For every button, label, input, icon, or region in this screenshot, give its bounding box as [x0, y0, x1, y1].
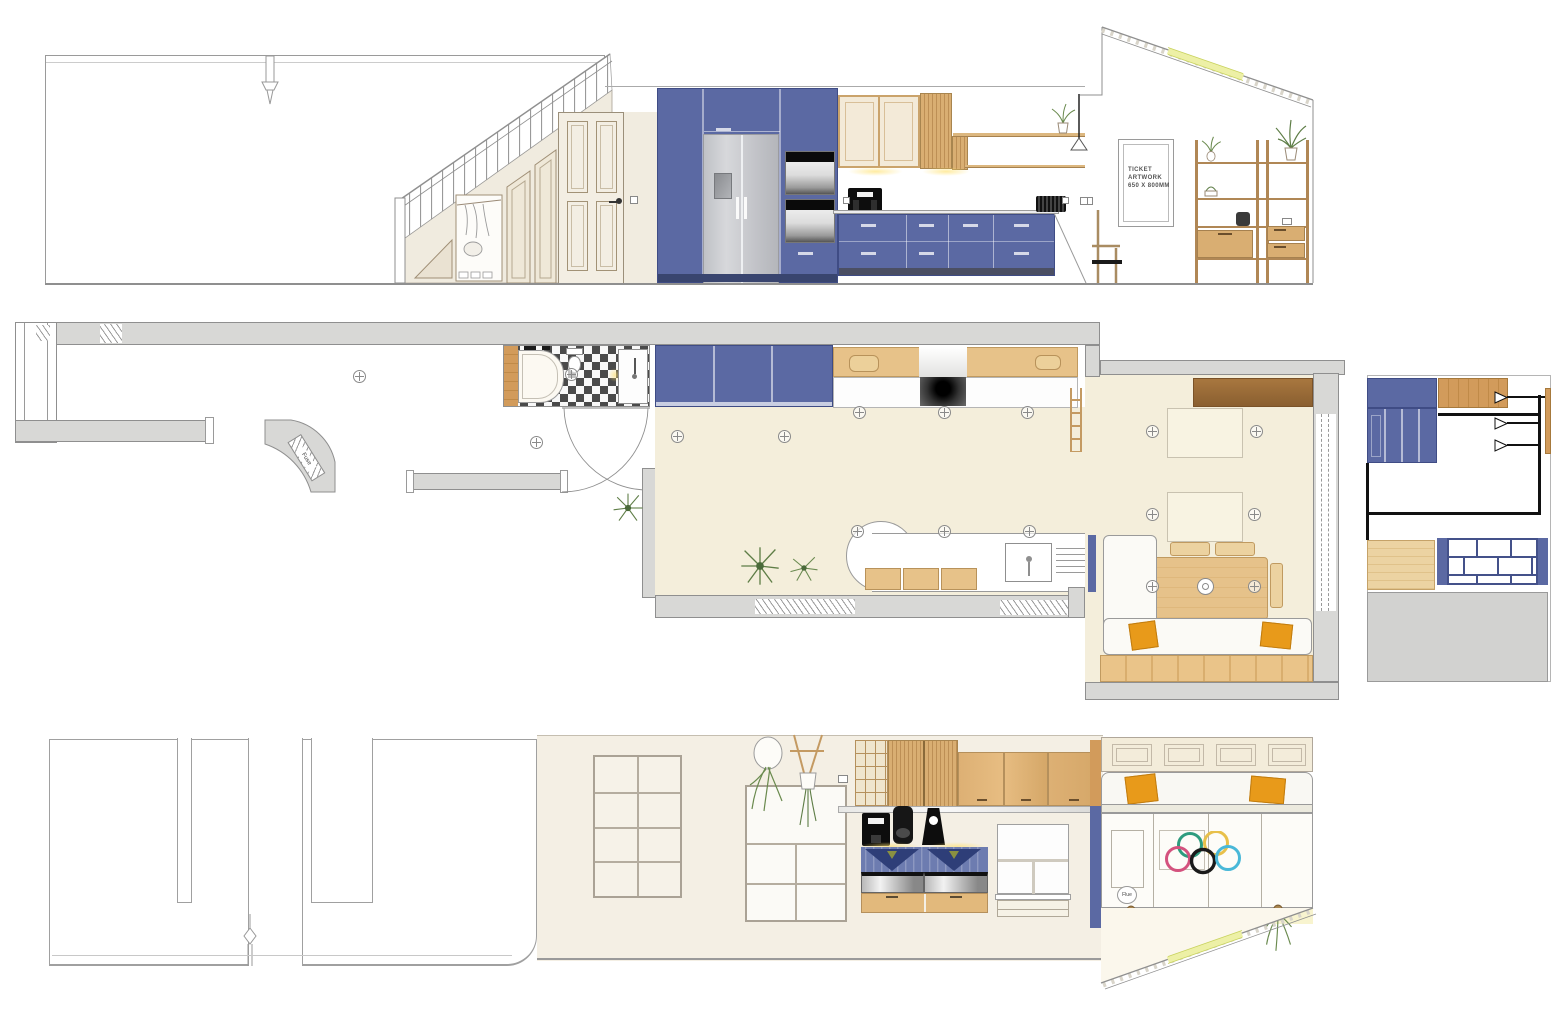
brick-panel [1478, 576, 1510, 583]
plant-fronds [750, 767, 782, 811]
shelf [1195, 198, 1309, 200]
brick-panel [1449, 540, 1476, 556]
mezzanine-wall-line [1366, 463, 1369, 540]
wall-shelf-lower [965, 165, 1085, 168]
brick-panel [1512, 576, 1536, 583]
front-wall [412, 473, 565, 490]
window-grid [593, 755, 682, 898]
cabinet-panel [1112, 744, 1152, 766]
ticket-artwork-frame: TICKET ARTWORK 650 X 800MM [1118, 139, 1174, 227]
ring-green [1179, 834, 1202, 857]
direction-arrow [1494, 439, 1508, 452]
door-panel [567, 201, 588, 271]
hob-counter [919, 347, 967, 377]
ceiling-light-symbol [565, 368, 578, 381]
fridge-dispenser [714, 173, 732, 199]
blue-wall-strip [1088, 535, 1096, 592]
orange-cushion [1128, 620, 1158, 650]
shelf-drawer [1267, 226, 1305, 241]
ceiling-light-symbol [530, 436, 543, 449]
shower [618, 349, 648, 404]
ceiling-light-symbol [1146, 580, 1159, 593]
wood-strip [1545, 388, 1551, 454]
rug [1167, 408, 1243, 458]
roof-dashed-line [1328, 414, 1329, 611]
ceiling-light-symbol [671, 430, 684, 443]
drawing-canvas: TICKET ARTWORK 650 X 800MM [0, 0, 1558, 1009]
corridor-south-wall [15, 420, 207, 442]
rug [1167, 492, 1243, 542]
fridge-handle [744, 197, 747, 219]
shelf-plant-icon [1200, 136, 1222, 162]
brick-panel [1499, 558, 1531, 574]
drawer-label-mark [861, 224, 876, 227]
mezzanine-landing [1367, 592, 1548, 682]
plinth [839, 268, 1054, 275]
fuse-label: Fuse [300, 452, 312, 466]
drawer-label-mark [1014, 252, 1029, 255]
plan-north-wall [15, 322, 1100, 345]
wall-recess [177, 738, 192, 903]
brick-panel [1449, 576, 1476, 583]
shoes [459, 272, 492, 278]
island-sink [1005, 543, 1052, 582]
section-marker [843, 197, 850, 204]
wall-ladder [1070, 388, 1082, 452]
mezzanine-wall-line [1438, 413, 1541, 416]
plant-hanger [790, 735, 824, 773]
wood-slat-panel [920, 93, 952, 169]
brick-panel [1512, 540, 1536, 556]
mezzanine-wall-line [1538, 395, 1541, 515]
steel-appliance [861, 872, 924, 893]
newel-post [395, 198, 405, 283]
cabinet-panel [1216, 744, 1256, 766]
bathroom-wood-strip [504, 346, 518, 406]
dining-pendant-symbol [1197, 578, 1214, 595]
door-swing-arcs [558, 404, 654, 496]
direction-arrow [1494, 417, 1508, 430]
desk-chair [1090, 208, 1122, 285]
drawer-label-mark [919, 224, 934, 227]
wood-upper-cabinet [958, 752, 1048, 806]
plan-tall-units [655, 345, 833, 407]
succulent-icon [1202, 182, 1220, 198]
bench-seat [1101, 804, 1313, 813]
ceiling-light-symbol [1250, 425, 1263, 438]
wood-floor-strip [1100, 655, 1313, 682]
ceiling-light-symbol [1248, 580, 1261, 593]
door-jamb [205, 417, 214, 444]
glazing-hatch [1000, 600, 1068, 615]
marble-counter [838, 806, 1103, 813]
integrated-fridge [703, 134, 779, 284]
understair-wardrobe [456, 195, 502, 281]
dark-wood-desk [1193, 378, 1313, 407]
orange-pillow [1249, 776, 1286, 805]
upper-cabinet-framed [838, 95, 920, 168]
island-stool [903, 568, 939, 590]
glazing-hatch [755, 599, 855, 614]
wall-junction-hatch [100, 324, 122, 343]
undercabinet-light [848, 167, 903, 176]
sink-cutout [849, 355, 879, 372]
drawer-label-mark [919, 252, 934, 255]
patterned-splashback [861, 847, 988, 873]
rear-window [997, 824, 1069, 894]
ceiling-light-symbol [938, 406, 951, 419]
ceiling-light-symbol [1146, 425, 1159, 438]
island-stool [941, 568, 977, 590]
plant-plan-icon [786, 550, 822, 586]
drawer-label-mark [1014, 224, 1029, 227]
ring-black [1192, 850, 1215, 873]
olympic-rings-artwork [1164, 831, 1248, 881]
shelf-drawer [1267, 243, 1305, 258]
pendant-light-mirrored [238, 908, 262, 966]
cabinet-label-mark [716, 128, 731, 131]
ceiling-line [605, 86, 1085, 87]
cabinet-label-mark [798, 252, 813, 255]
brick-panel [1478, 540, 1510, 556]
ceiling-light-symbol [1023, 525, 1036, 538]
door-jamb [406, 470, 414, 493]
shelf-plant-icon [1274, 118, 1308, 162]
hanging-plants [746, 733, 830, 833]
living-south-wall [1085, 682, 1339, 700]
shelf [1195, 258, 1309, 260]
oven-lower [785, 199, 835, 243]
orange-pillow [1124, 773, 1158, 805]
coffee-grinder [893, 806, 913, 844]
door-panel [567, 121, 588, 193]
orange-cushion [1260, 621, 1293, 649]
oven-upper [785, 151, 835, 195]
bed-unit [1437, 538, 1548, 585]
base-line [537, 958, 1103, 960]
ceiling-light-symbol [353, 370, 366, 383]
shelf [1195, 162, 1309, 164]
pendant-light-icon [258, 56, 282, 108]
cabinet-panel [1164, 744, 1204, 766]
island-stool [865, 568, 901, 590]
tall-kitchen-units [657, 88, 838, 283]
door-knob [616, 198, 622, 204]
speaker [1236, 212, 1250, 226]
glass-grid-cabinet [855, 740, 888, 806]
panel-cabinet-row [1101, 737, 1313, 772]
understair-panel-1 [507, 171, 530, 283]
living-north-wall [1100, 360, 1345, 375]
drawer-label-mark [861, 252, 876, 255]
shelf-items [542, 346, 550, 350]
wall-pier [1068, 587, 1085, 618]
plinth [658, 274, 837, 282]
sink-cutout [1035, 355, 1061, 370]
brick-panel [1449, 558, 1463, 574]
socket-marker [1282, 218, 1292, 225]
ceiling-light-symbol [851, 525, 864, 538]
panel-door [1111, 830, 1144, 888]
door-panel [596, 201, 617, 271]
extractor-hob [920, 377, 966, 406]
ticket-artwork-text: TICKET ARTWORK 650 X 800MM [1128, 166, 1170, 190]
mezzanine-wall-line [1367, 512, 1541, 515]
door-panel [596, 121, 617, 193]
ceiling-light-symbol [778, 430, 791, 443]
table-bench [1270, 563, 1283, 608]
bathtub [518, 350, 564, 403]
undercabinet-light [922, 167, 970, 176]
section-marker [1062, 197, 1069, 204]
ring-cyan [1217, 847, 1240, 870]
shelf-drawer [1197, 230, 1253, 258]
ceiling-light-symbol [1146, 508, 1159, 521]
brick-panel [1465, 558, 1497, 574]
ring-pink [1167, 848, 1190, 871]
fridge-handle [736, 197, 739, 219]
seat-pad [1170, 542, 1210, 556]
ceiling-light-symbol [1021, 406, 1034, 419]
wardrobe-top [1367, 378, 1437, 408]
skylight-strip [1168, 51, 1243, 77]
hallway-door [558, 112, 624, 285]
skylight-slope [1095, 898, 1317, 993]
direction-arrow [1494, 391, 1508, 404]
switch-marker [630, 196, 638, 204]
steel-appliance [924, 872, 988, 893]
shower-drain [632, 374, 637, 379]
living-east-wall [1313, 373, 1339, 682]
shelving-unit [1194, 118, 1312, 283]
base-cabinets [838, 214, 1055, 276]
ceiling-light-symbol [1248, 508, 1261, 521]
plan-counter-wood [833, 347, 1078, 377]
roof-dashed-line [1321, 414, 1322, 611]
hanging-pot [800, 773, 816, 789]
shelf-items [524, 346, 536, 350]
wood-sliver [1090, 740, 1101, 806]
floor-line [45, 283, 1313, 285]
under-window-drawer [997, 900, 1069, 917]
wall-recess [311, 738, 373, 903]
slat-cabinet [888, 740, 958, 807]
plant-plan-icon [610, 490, 646, 526]
seat-pad [1215, 542, 1255, 556]
toilet-cistern [566, 348, 583, 355]
wall-connector [1085, 345, 1100, 377]
wardrobe-doors [1367, 408, 1437, 463]
ceiling-light-symbol [853, 406, 866, 419]
drawer-label-mark [963, 224, 978, 227]
plant-plan-icon [738, 543, 782, 589]
mezzanine-wood-floor [1367, 540, 1435, 590]
understair-panel-2 [535, 150, 556, 283]
drainer-lines [1056, 548, 1088, 573]
marker-box [838, 775, 848, 783]
cabinet-panel [1268, 744, 1306, 766]
wood-drawer-base [861, 893, 988, 913]
ceiling-light-symbol [938, 525, 951, 538]
